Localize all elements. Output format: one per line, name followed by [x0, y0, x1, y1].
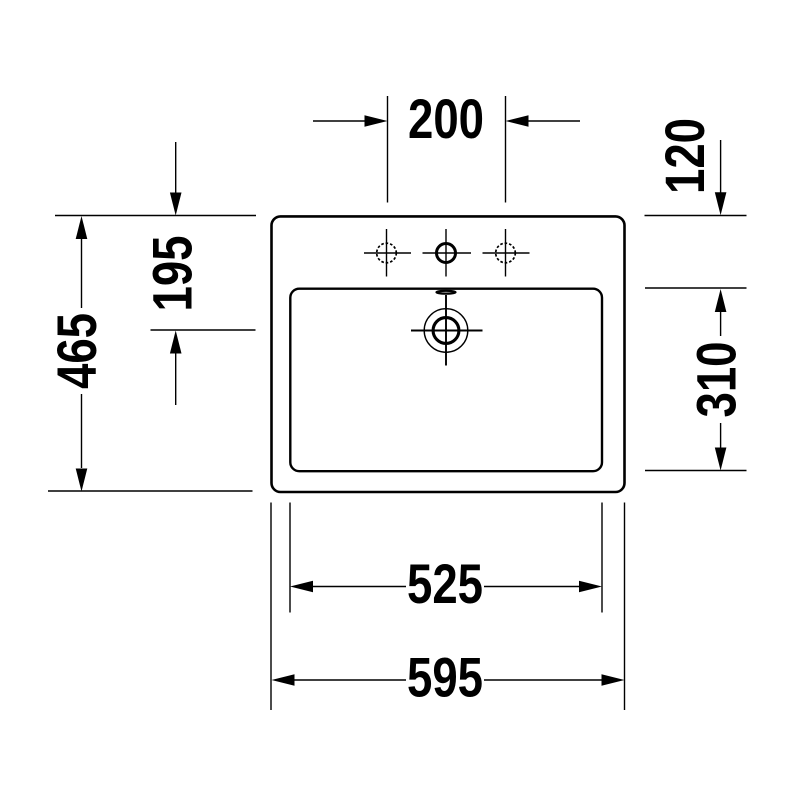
- svg-text:310: 310: [686, 342, 748, 418]
- svg-text:120: 120: [654, 118, 716, 194]
- svg-text:200: 200: [408, 88, 484, 150]
- svg-text:595: 595: [407, 646, 483, 708]
- svg-text:525: 525: [407, 553, 483, 615]
- svg-text:195: 195: [142, 236, 204, 312]
- svg-text:465: 465: [46, 313, 108, 389]
